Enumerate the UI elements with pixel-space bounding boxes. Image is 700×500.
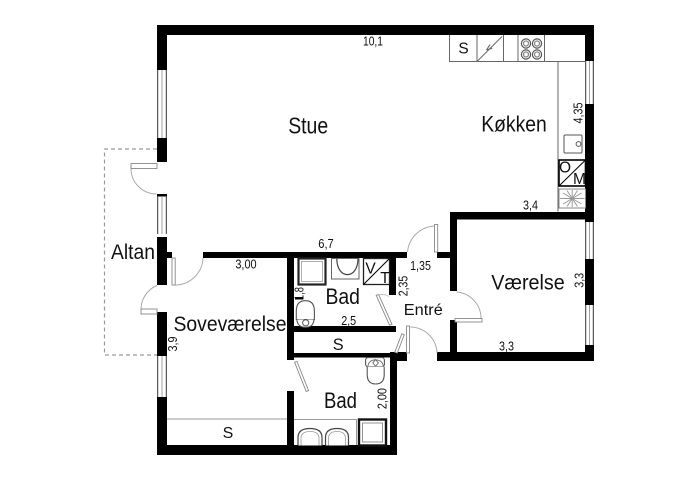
svg-text:Altan: Altan bbox=[111, 240, 155, 264]
svg-text:Værelse: Værelse bbox=[491, 271, 565, 295]
svg-text:4,35: 4,35 bbox=[572, 102, 586, 123]
svg-text:3,3: 3,3 bbox=[499, 340, 514, 354]
svg-text:V: V bbox=[365, 260, 376, 277]
svg-text:6,7: 6,7 bbox=[318, 237, 334, 251]
svg-text:10,1: 10,1 bbox=[363, 35, 383, 49]
svg-text:M: M bbox=[573, 171, 586, 188]
svg-text:T: T bbox=[380, 270, 390, 287]
svg-text:Bad: Bad bbox=[325, 284, 360, 309]
svg-text:2,00: 2,00 bbox=[374, 388, 389, 409]
svg-text:Entré: Entré bbox=[404, 302, 443, 319]
svg-text:S: S bbox=[333, 336, 344, 354]
svg-text:3,00: 3,00 bbox=[235, 257, 256, 271]
svg-text:3,9: 3,9 bbox=[166, 336, 180, 351]
svg-text:3,4: 3,4 bbox=[523, 198, 538, 212]
svg-text:3,3: 3,3 bbox=[572, 273, 586, 288]
svg-text:S: S bbox=[223, 425, 234, 442]
svg-text:S: S bbox=[458, 41, 468, 58]
svg-text:2,35: 2,35 bbox=[396, 276, 410, 297]
svg-text:1,8: 1,8 bbox=[293, 287, 307, 300]
svg-text:Stue: Stue bbox=[288, 113, 328, 139]
svg-text:Soveværelse: Soveværelse bbox=[174, 313, 287, 336]
svg-text:O: O bbox=[559, 160, 571, 177]
svg-text:Køkken: Køkken bbox=[481, 111, 547, 136]
svg-text:Bad: Bad bbox=[324, 388, 357, 413]
svg-text:2,5: 2,5 bbox=[341, 314, 356, 328]
svg-text:1,35: 1,35 bbox=[410, 259, 431, 273]
